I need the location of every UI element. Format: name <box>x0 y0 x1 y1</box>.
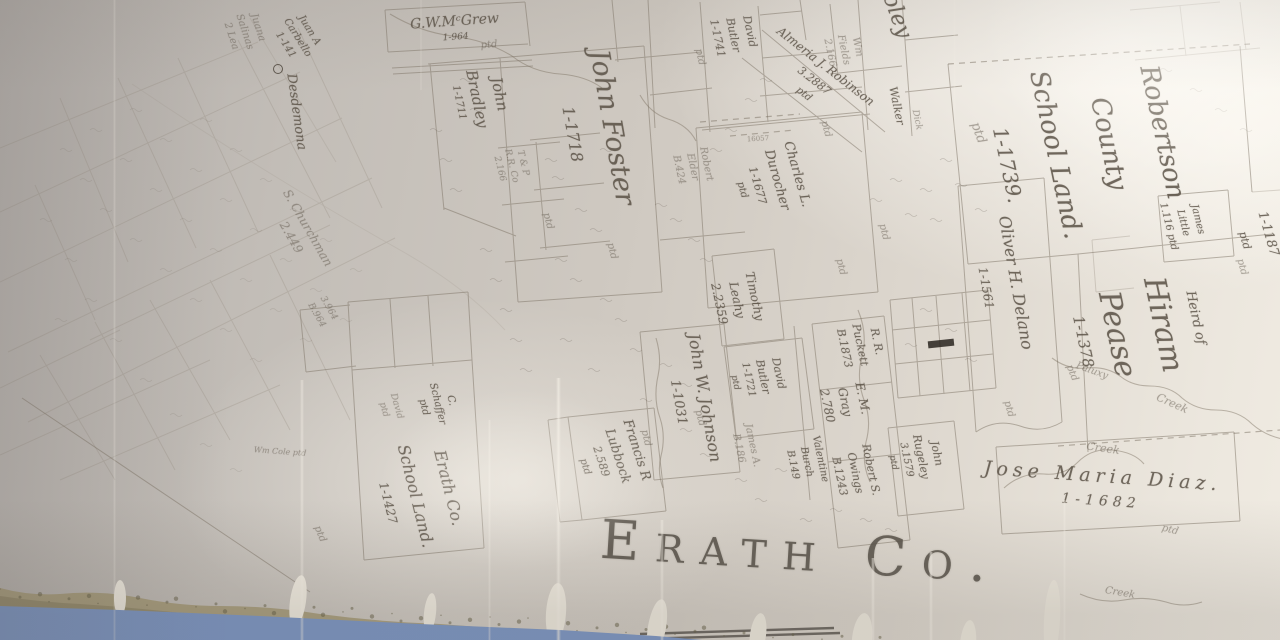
paper-crease <box>300 380 304 640</box>
paper-crease <box>420 0 422 90</box>
paper-crease <box>113 0 116 640</box>
paper-crease <box>660 520 664 640</box>
paper-crease <box>871 558 875 640</box>
map-photo: Erath Co. RobertsonCountySchool Land.1-1… <box>0 0 1280 640</box>
paper-crease <box>929 552 933 640</box>
paper-crease <box>556 378 561 640</box>
crease-layer <box>0 0 1280 640</box>
paper-crease <box>953 0 956 130</box>
paper-crease <box>488 420 491 640</box>
paper-crease <box>1063 500 1066 640</box>
